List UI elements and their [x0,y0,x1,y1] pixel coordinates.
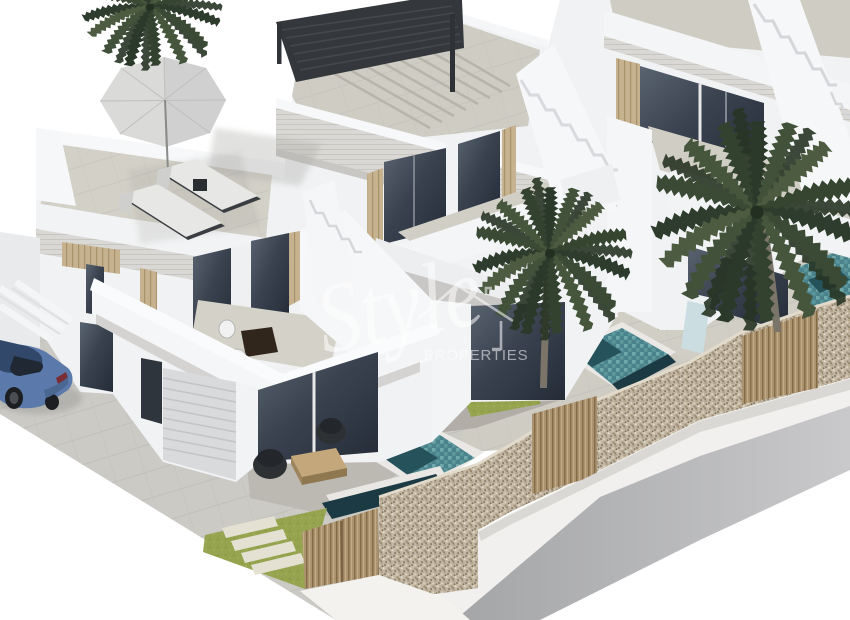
svg-text:PROPERTIES: PROPERTIES [424,347,528,364]
